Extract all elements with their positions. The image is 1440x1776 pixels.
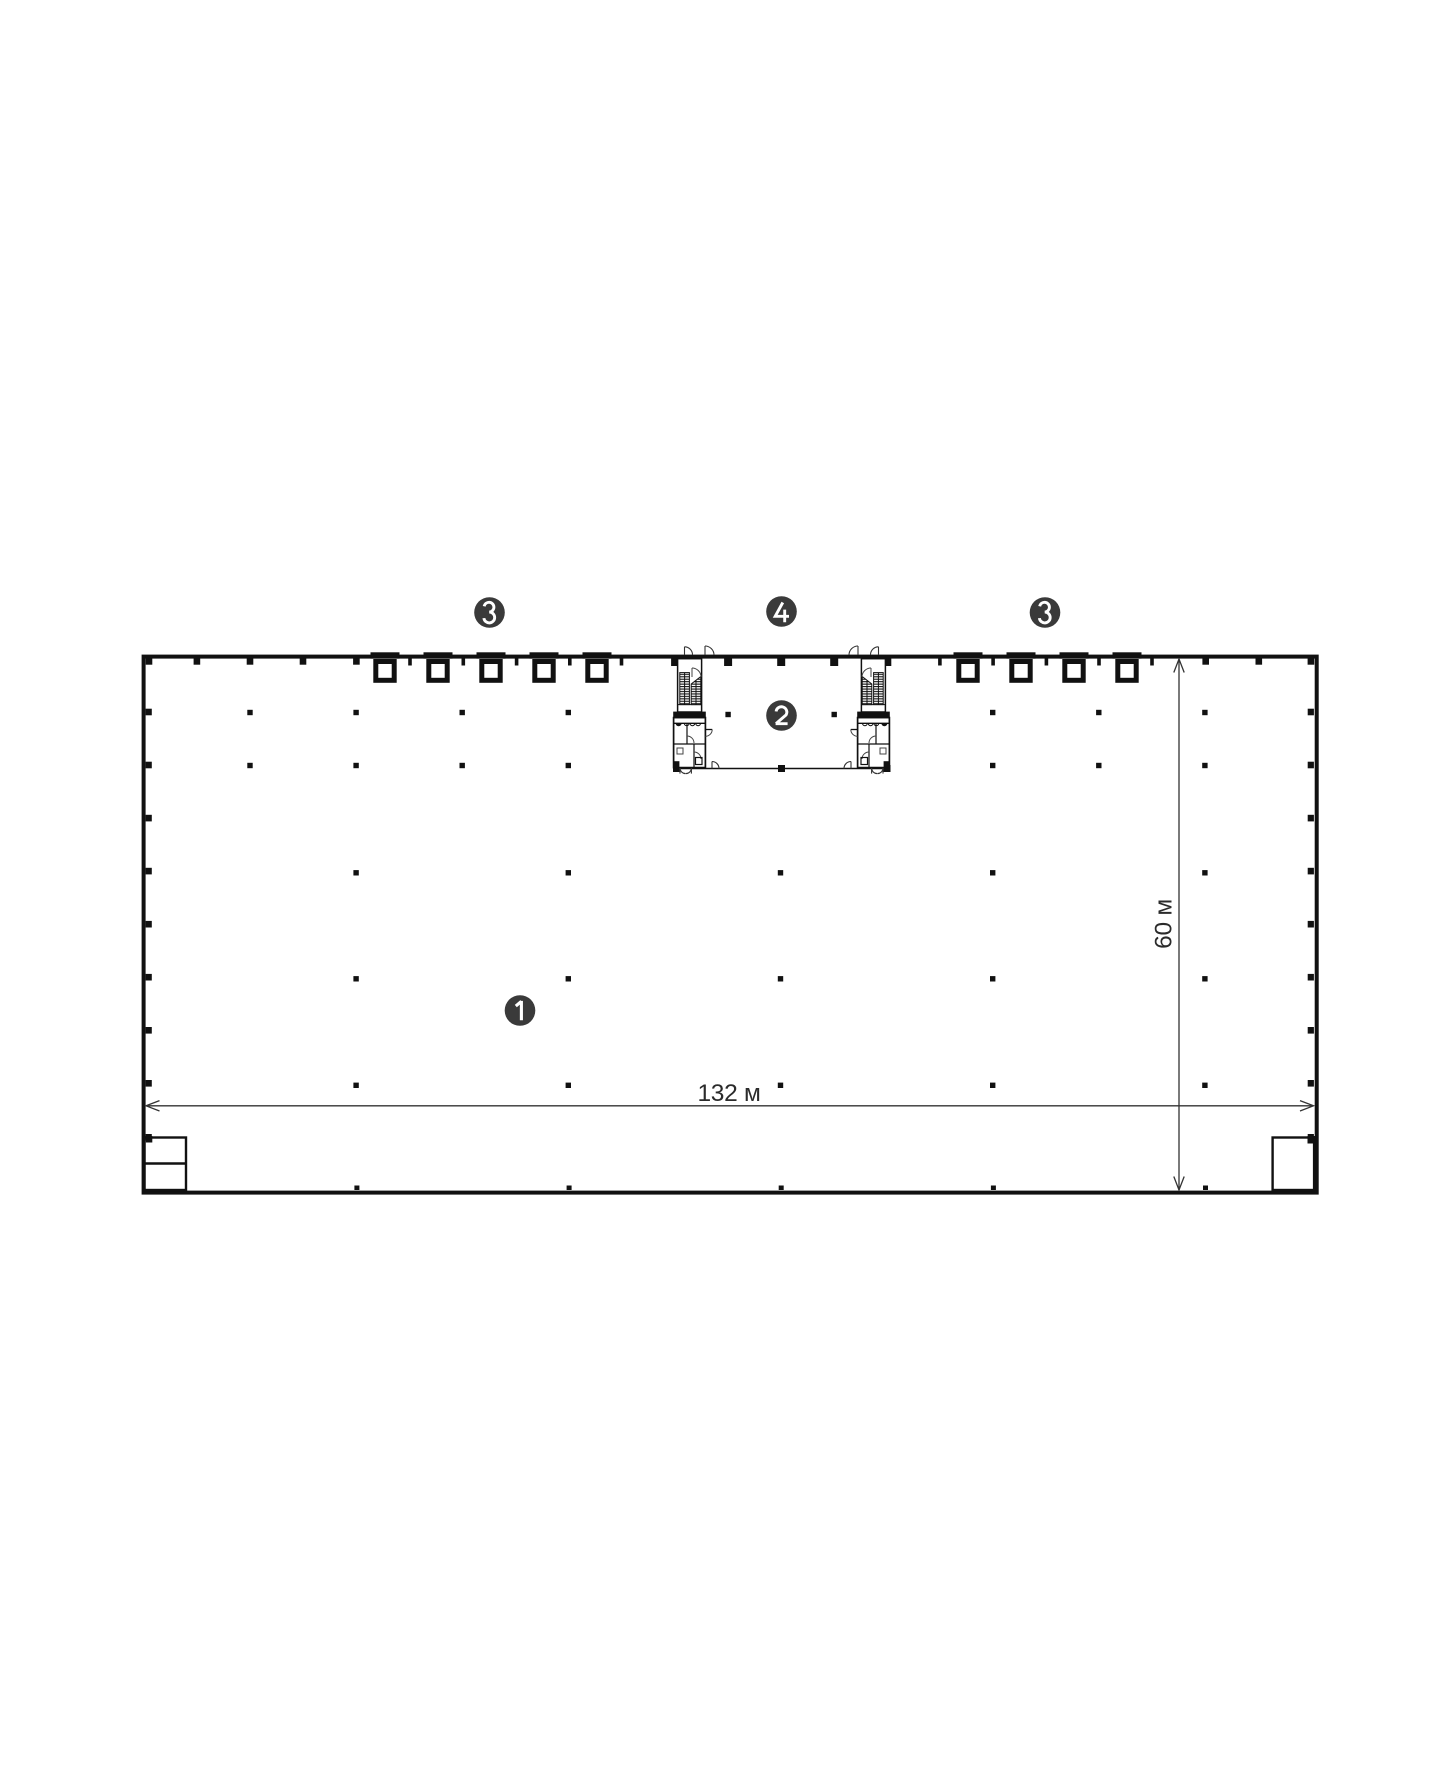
svg-text:60 м: 60 м <box>1151 899 1178 949</box>
svg-text:132 м: 132 м <box>697 1080 760 1107</box>
